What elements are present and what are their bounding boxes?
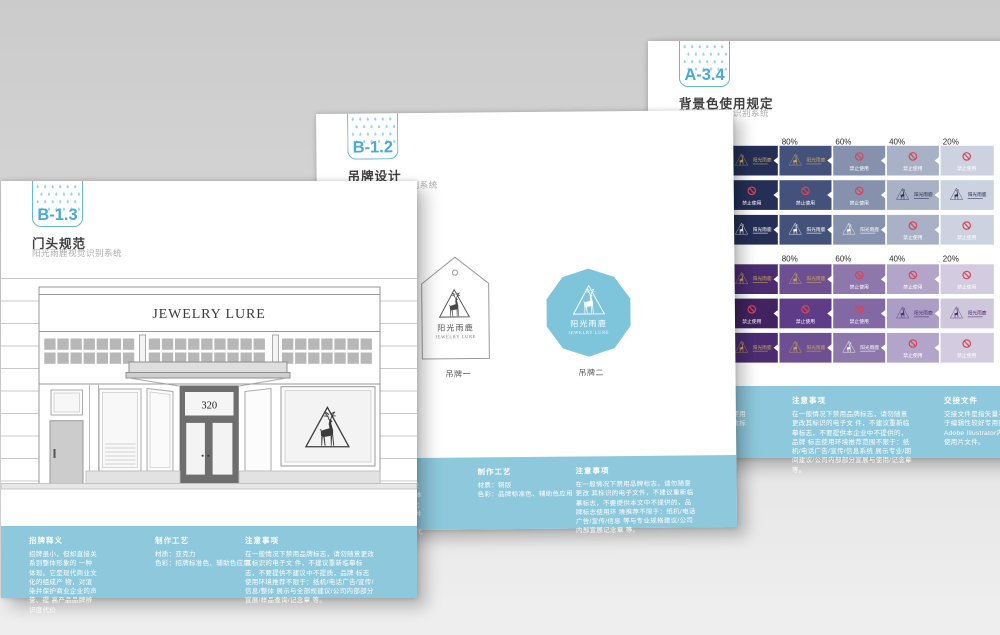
svg-text:阳光雨鹿: 阳光雨鹿	[807, 157, 826, 164]
svg-text:阳光雨鹿: 阳光雨鹿	[753, 344, 772, 351]
svg-text:阳光雨鹿: 阳光雨鹿	[860, 344, 879, 351]
svg-text:禁止使用: 禁止使用	[850, 284, 869, 291]
svg-text:20%: 20%	[943, 138, 959, 147]
svg-text:阳光雨鹿: 阳光雨鹿	[807, 275, 826, 282]
svg-text:40%: 40%	[889, 255, 905, 264]
svg-text:阳光雨鹿: 阳光雨鹿	[914, 310, 933, 317]
svg-text:阳光雨鹿: 阳光雨鹿	[968, 191, 987, 198]
svg-text:禁止使用: 禁止使用	[957, 165, 976, 172]
svg-text:JEWELRY LURE: JEWELRY LURE	[568, 329, 609, 334]
svg-text:阳光雨鹿: 阳光雨鹿	[807, 226, 826, 233]
svg-text:阳光雨鹿: 阳光雨鹿	[753, 275, 772, 282]
svg-text:禁止使用: 禁止使用	[850, 318, 869, 325]
svg-text:JEWELRY LURE: JEWELRY LURE	[152, 307, 265, 322]
svg-text:禁止使用: 禁止使用	[850, 200, 869, 207]
svg-text:阳光雨鹿: 阳光雨鹿	[968, 310, 987, 317]
svg-text:禁止使用: 禁止使用	[903, 352, 922, 359]
svg-text:阳光雨鹿: 阳光雨鹿	[753, 226, 772, 233]
svg-text:阳光雨鹿: 阳光雨鹿	[807, 344, 826, 351]
svg-text:80%: 80%	[782, 255, 798, 264]
svg-text:禁止使用: 禁止使用	[957, 352, 976, 359]
svg-text:阳光雨鹿: 阳光雨鹿	[914, 191, 933, 198]
svg-text:320: 320	[201, 401, 217, 412]
svg-text:禁止使用: 禁止使用	[903, 234, 922, 241]
svg-text:80%: 80%	[782, 138, 798, 147]
svg-text:禁止使用: 禁止使用	[850, 165, 869, 172]
svg-text:阳光雨鹿: 阳光雨鹿	[753, 157, 772, 164]
svg-text:40%: 40%	[889, 138, 905, 147]
svg-text:禁止使用: 禁止使用	[796, 318, 815, 325]
svg-text:禁止使用: 禁止使用	[957, 234, 976, 241]
svg-text:JEWELRY LURE: JEWELRY LURE	[435, 333, 476, 338]
svg-text:禁止使用: 禁止使用	[957, 284, 976, 291]
svg-text:禁止使用: 禁止使用	[903, 284, 922, 291]
svg-text:20%: 20%	[943, 255, 959, 264]
svg-text:禁止使用: 禁止使用	[796, 200, 815, 207]
svg-text:阳光雨鹿: 阳光雨鹿	[860, 226, 879, 233]
svg-text:60%: 60%	[835, 138, 851, 147]
svg-text:禁止使用: 禁止使用	[903, 165, 922, 172]
svg-text:60%: 60%	[835, 255, 851, 264]
svg-text:禁止使用: 禁止使用	[742, 318, 761, 325]
svg-text:禁止使用: 禁止使用	[742, 200, 761, 207]
svg-text:阳光雨鹿: 阳光雨鹿	[437, 322, 474, 332]
svg-text:阳光雨鹿: 阳光雨鹿	[570, 318, 607, 328]
